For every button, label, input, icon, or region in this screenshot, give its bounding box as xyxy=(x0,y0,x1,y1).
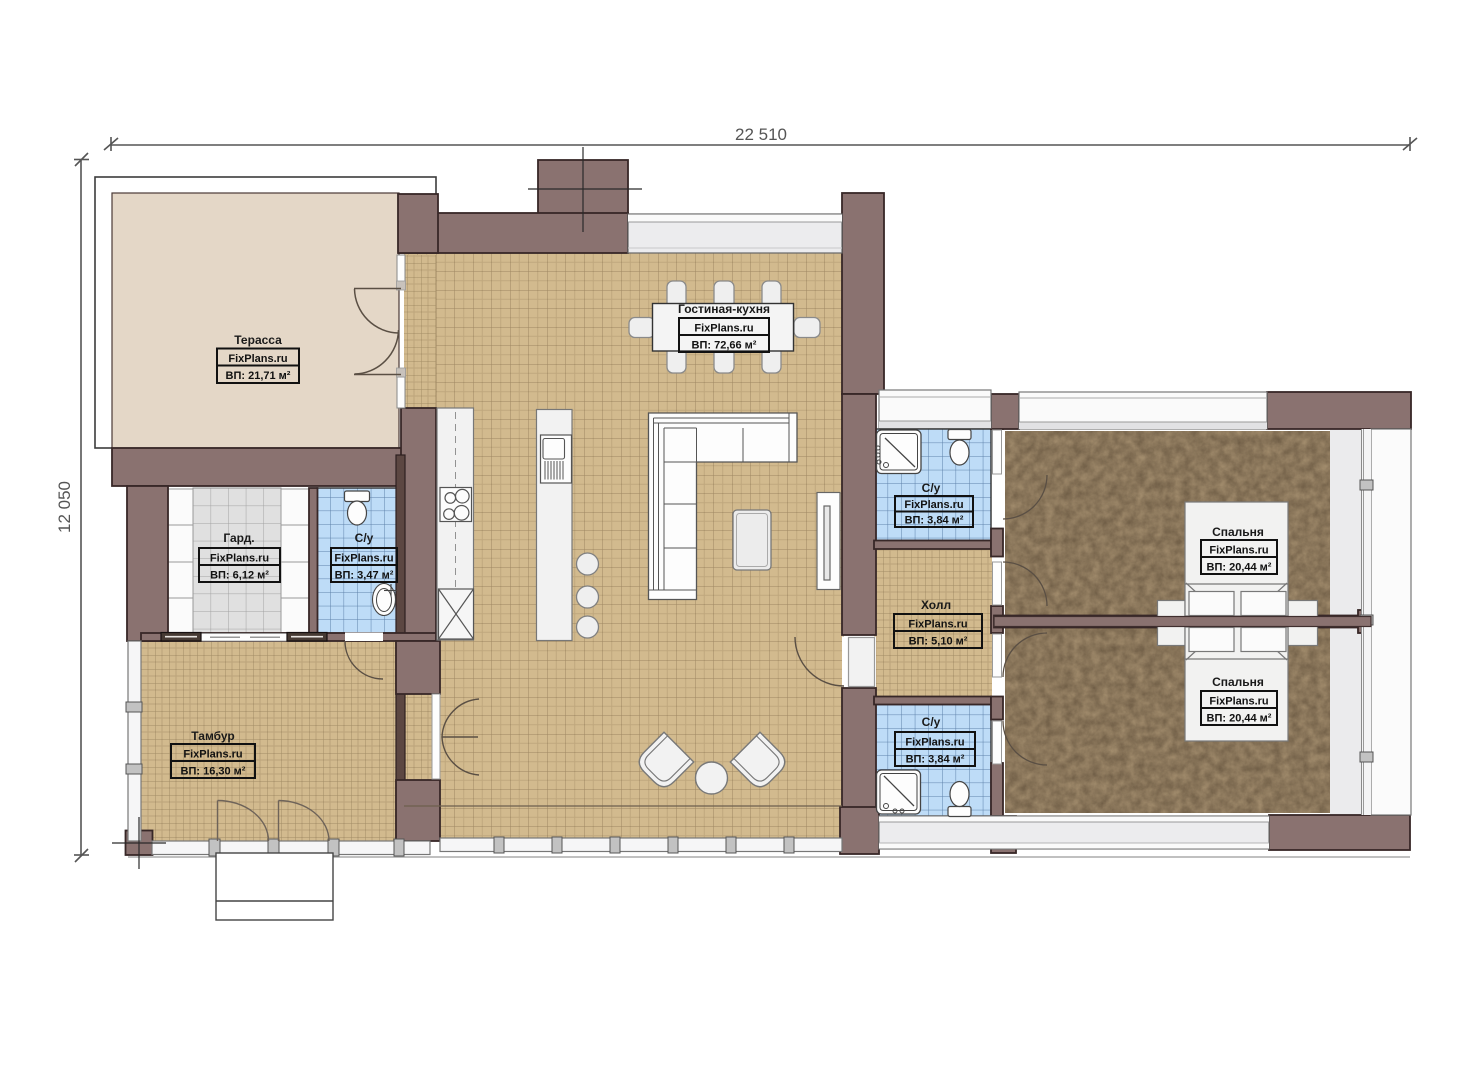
svg-text:Спальня: Спальня xyxy=(1212,675,1264,689)
svg-text:ВП: 21,71 м²: ВП: 21,71 м² xyxy=(226,370,291,382)
svg-text:ВП: 3,84 м²: ВП: 3,84 м² xyxy=(905,515,964,527)
svg-text:Гард.: Гард. xyxy=(223,531,254,545)
svg-text:ВП: 16,30 м²: ВП: 16,30 м² xyxy=(181,766,246,778)
svg-text:ВП: 3,47 м²: ВП: 3,47 м² xyxy=(335,570,394,582)
svg-text:ВП: 20,44 м²: ВП: 20,44 м² xyxy=(1207,713,1272,725)
svg-text:FixPlans.ru: FixPlans.ru xyxy=(228,353,287,365)
svg-text:12 050: 12 050 xyxy=(55,481,74,533)
svg-text:FixPlans.ru: FixPlans.ru xyxy=(210,553,269,565)
svg-text:FixPlans.ru: FixPlans.ru xyxy=(334,553,393,565)
svg-text:FixPlans.ru: FixPlans.ru xyxy=(694,323,753,335)
svg-text:С/у: С/у xyxy=(355,531,374,545)
svg-text:Терасса: Терасса xyxy=(234,333,282,347)
svg-text:FixPlans.ru: FixPlans.ru xyxy=(904,499,963,511)
svg-text:ВП: 20,44 м²: ВП: 20,44 м² xyxy=(1207,562,1272,574)
svg-text:Тамбур: Тамбур xyxy=(191,729,235,743)
svg-text:ВП: 5,10 м²: ВП: 5,10 м² xyxy=(909,636,968,648)
svg-text:С/у: С/у xyxy=(922,715,941,729)
svg-text:FixPlans.ru: FixPlans.ru xyxy=(908,619,967,631)
svg-text:С/у: С/у xyxy=(922,481,941,495)
svg-text:FixPlans.ru: FixPlans.ru xyxy=(1209,696,1268,708)
svg-text:ВП: 72,66 м²: ВП: 72,66 м² xyxy=(692,340,757,352)
svg-text:Спальня: Спальня xyxy=(1212,525,1264,539)
svg-text:ВП: 6,12 м²: ВП: 6,12 м² xyxy=(210,570,269,582)
svg-text:FixPlans.ru: FixPlans.ru xyxy=(905,737,964,749)
svg-text:22 510: 22 510 xyxy=(735,125,787,144)
svg-text:Гостиная-кухня: Гостиная-кухня xyxy=(678,302,770,316)
svg-text:FixPlans.ru: FixPlans.ru xyxy=(183,749,242,761)
svg-text:ВП: 3,84 м²: ВП: 3,84 м² xyxy=(906,754,965,766)
svg-text:FixPlans.ru: FixPlans.ru xyxy=(1209,545,1268,557)
svg-text:Холл: Холл xyxy=(921,598,951,612)
